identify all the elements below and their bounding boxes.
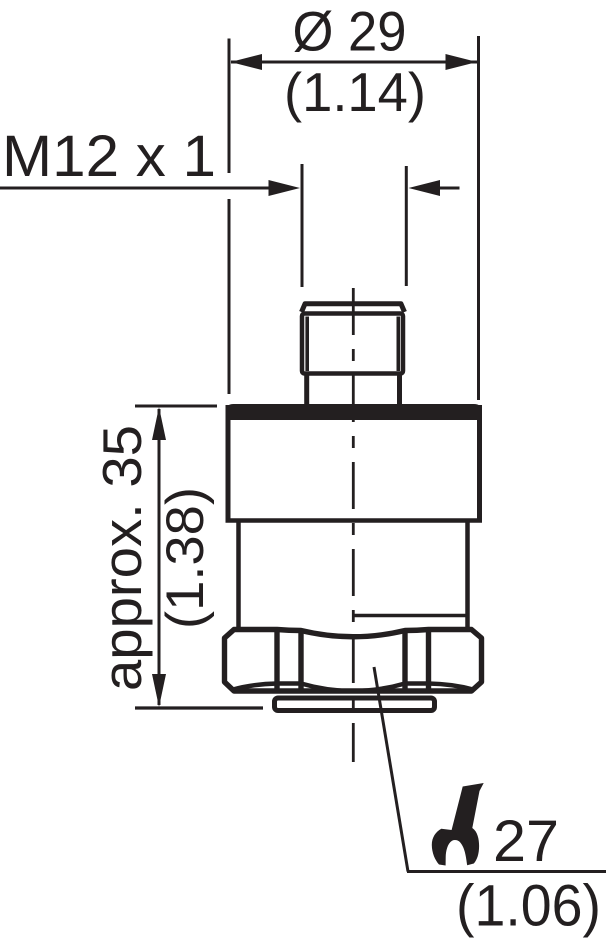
- svg-text:Ø 29: Ø 29: [293, 0, 407, 63]
- svg-text:(1.38): (1.38): [156, 487, 215, 629]
- svg-text:27: 27: [493, 809, 559, 874]
- svg-text:M12 x 1: M12 x 1: [2, 124, 216, 189]
- svg-text:approx. 35: approx. 35: [91, 425, 153, 691]
- svg-text:(1.06): (1.06): [456, 874, 601, 939]
- svg-text:(1.14): (1.14): [284, 61, 426, 123]
